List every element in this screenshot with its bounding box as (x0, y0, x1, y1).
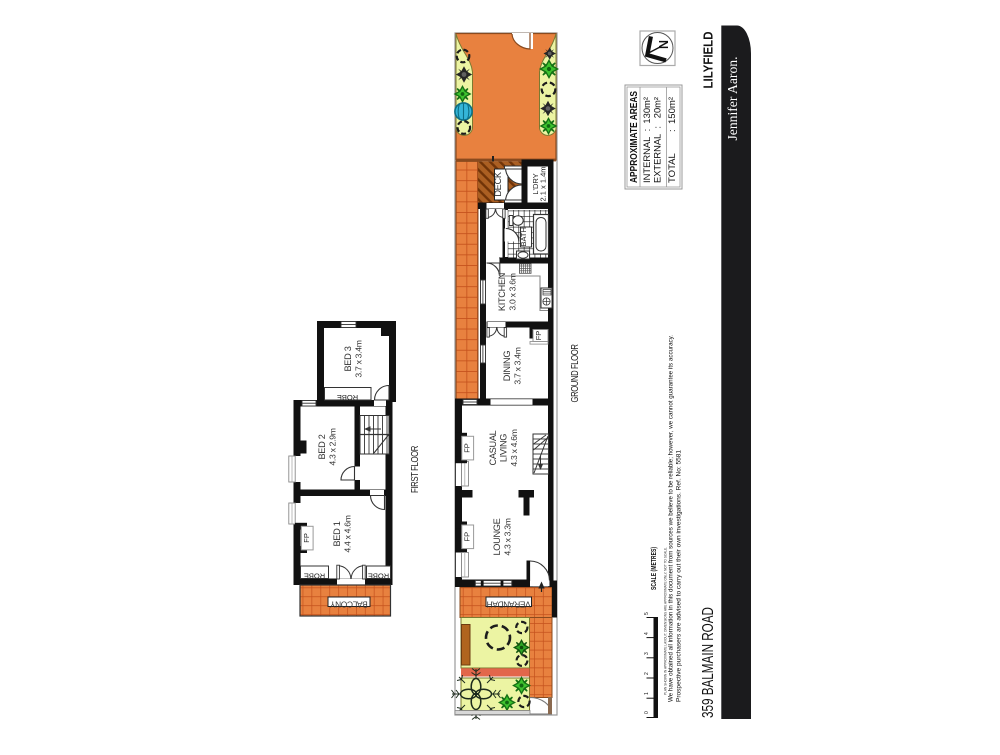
svg-text:BED 1: BED 1 (332, 521, 342, 546)
svg-text:BATH: BATH (519, 227, 528, 246)
svg-text:BED 3: BED 3 (343, 346, 353, 371)
svg-text:N: N (657, 40, 671, 49)
svg-text:SCALE (METRES): SCALE (METRES) (651, 547, 658, 590)
svg-text:FP: FP (534, 331, 543, 341)
svg-text:DINING: DINING (502, 351, 512, 382)
svg-text:359 BALMAIN ROAD: 359 BALMAIN ROAD (700, 607, 717, 718)
svg-text:Jennifer Aaron.: Jennifer Aaron. (725, 57, 740, 141)
svg-text:2: 2 (644, 672, 650, 675)
svg-text:We have obtained all informati: We have obtained all information in this… (668, 335, 675, 702)
svg-text:3.0 x 3.6m: 3.0 x 3.6m (508, 273, 518, 310)
svg-text:3.7 x 3.4m: 3.7 x 3.4m (354, 340, 364, 377)
svg-text:LOUNGE: LOUNGE (492, 518, 502, 555)
svg-text:3: 3 (644, 652, 650, 655)
svg-text:5: 5 (644, 612, 650, 615)
svg-text:Prospective purchasers are adv: Prospective purchasers are advised to ca… (676, 450, 683, 702)
svg-text:2.1 x 1.4m: 2.1 x 1.4m (539, 166, 548, 201)
svg-text:FP: FP (462, 532, 471, 542)
svg-text:1: 1 (644, 692, 650, 695)
svg-text:4.3 x 3.3m: 4.3 x 3.3m (503, 518, 513, 555)
svg-text:ROBE: ROBE (337, 393, 358, 402)
svg-text:VERANDAH: VERANDAH (487, 599, 531, 609)
svg-text:BED 2: BED 2 (317, 434, 327, 459)
svg-text:KITCHEN: KITCHEN (497, 273, 507, 311)
svg-text:4.4 x 4.6m: 4.4 x 4.6m (343, 515, 353, 552)
svg-text:CASUAL: CASUAL (488, 430, 498, 465)
svg-text:LIVING: LIVING (499, 434, 509, 462)
svg-text:ROBE: ROBE (368, 572, 389, 581)
svg-text:ROBE: ROBE (304, 572, 325, 581)
svg-text:FP: FP (462, 443, 471, 453)
svg-text:4.3 x 4.6m: 4.3 x 4.6m (509, 429, 519, 466)
svg-text:DECK: DECK (493, 171, 503, 196)
svg-text:GROUND FLOOR: GROUND FLOOR (570, 344, 581, 402)
svg-text:LILYFIELD: LILYFIELD (700, 32, 715, 89)
svg-text:FIRST FLOOR: FIRST FLOOR (410, 446, 421, 493)
svg-text:4.3 x 2.9m: 4.3 x 2.9m (328, 428, 338, 465)
svg-text:3.7 x 3.4m: 3.7 x 3.4m (513, 347, 523, 384)
svg-text:APPROXIMATE AREAS: APPROXIMATE AREAS (629, 91, 640, 183)
svg-text:TOTAL : 150m²: TOTAL : 150m² (667, 97, 677, 183)
svg-text:FP: FP (302, 533, 311, 543)
svg-text:INTERNAL : 130m²: INTERNAL : 130m² (642, 97, 652, 183)
svg-text:EXTERNAL : 20m²: EXTERNAL : 20m² (653, 97, 663, 183)
svg-text:BALCONY: BALCONY (329, 599, 367, 609)
svg-text:0: 0 (644, 711, 650, 714)
svg-text:4: 4 (644, 632, 650, 635)
